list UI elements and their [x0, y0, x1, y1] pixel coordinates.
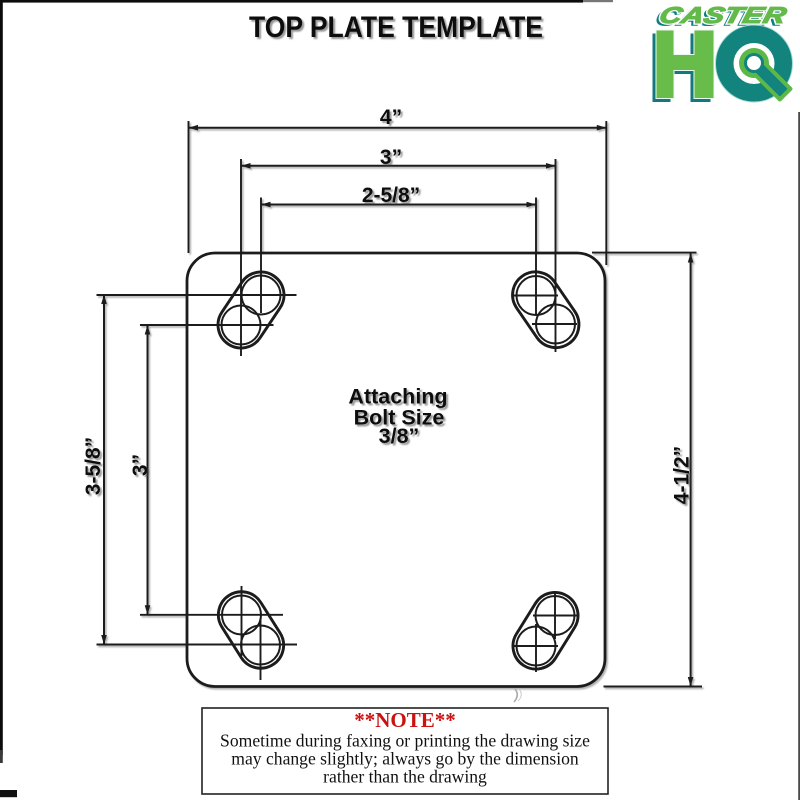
svg-text:3”: 3” — [380, 146, 402, 169]
svg-text:2-5/8”: 2-5/8” — [362, 184, 420, 207]
svg-text:may change slightly; always go: may change slightly; always go by the di… — [231, 749, 579, 769]
svg-text:4”: 4” — [380, 106, 402, 129]
svg-text:4-1/2”: 4-1/2” — [671, 446, 694, 504]
svg-text:3-5/8”: 3-5/8” — [82, 437, 105, 495]
svg-text:TOP PLATE TEMPLATE: TOP PLATE TEMPLATE — [249, 11, 543, 44]
svg-text:3”: 3” — [129, 454, 152, 476]
svg-text:Sometime during faxing or prin: Sometime during faxing or printing the d… — [220, 731, 590, 751]
svg-text:rather than the drawing: rather than the drawing — [323, 767, 487, 787]
svg-text:**NOTE**: **NOTE** — [354, 708, 456, 732]
svg-text:CASTER: CASTER — [657, 2, 790, 28]
svg-text:3/8”: 3/8” — [379, 424, 420, 448]
